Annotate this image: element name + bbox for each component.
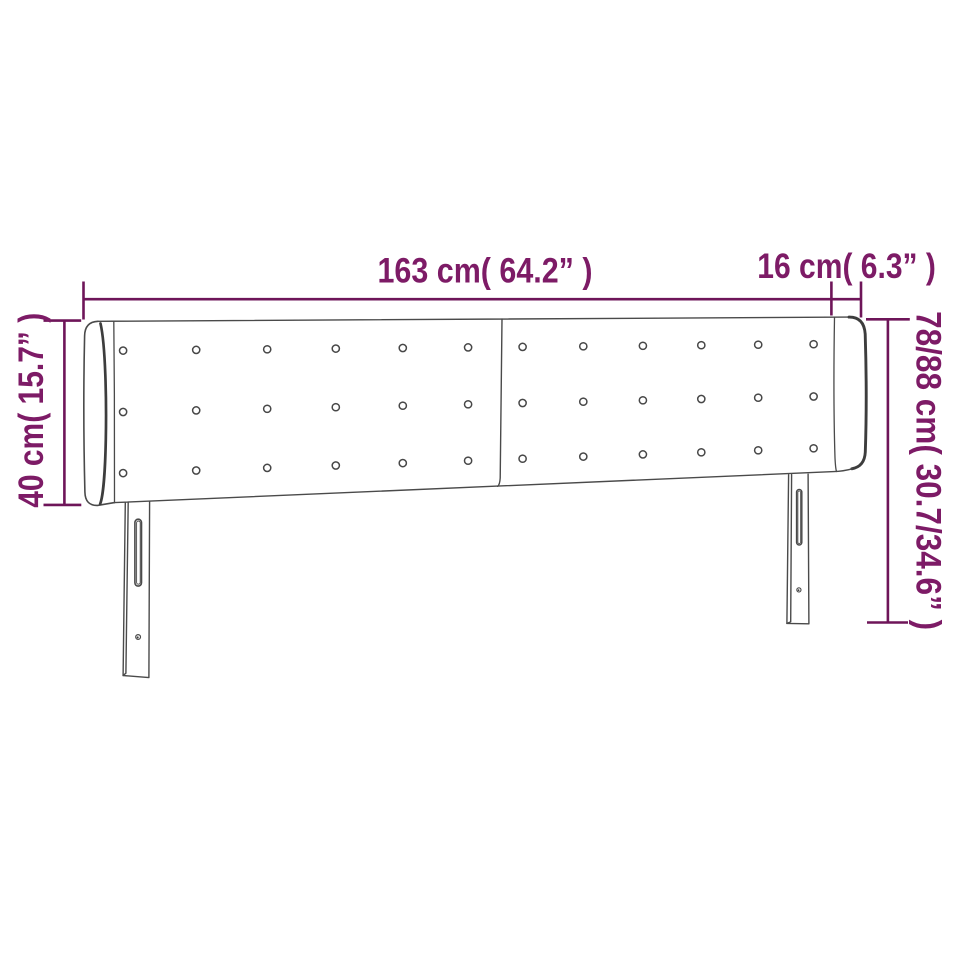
svg-text:78/88 cm( 30.7/34.6” ): 78/88 cm( 30.7/34.6” ) xyxy=(909,311,948,630)
svg-text:16 cm( 6.3” ): 16 cm( 6.3” ) xyxy=(757,247,936,286)
svg-text:40 cm( 15.7” ): 40 cm( 15.7” ) xyxy=(12,313,51,508)
svg-text:163 cm( 64.2” ): 163 cm( 64.2” ) xyxy=(378,252,593,291)
